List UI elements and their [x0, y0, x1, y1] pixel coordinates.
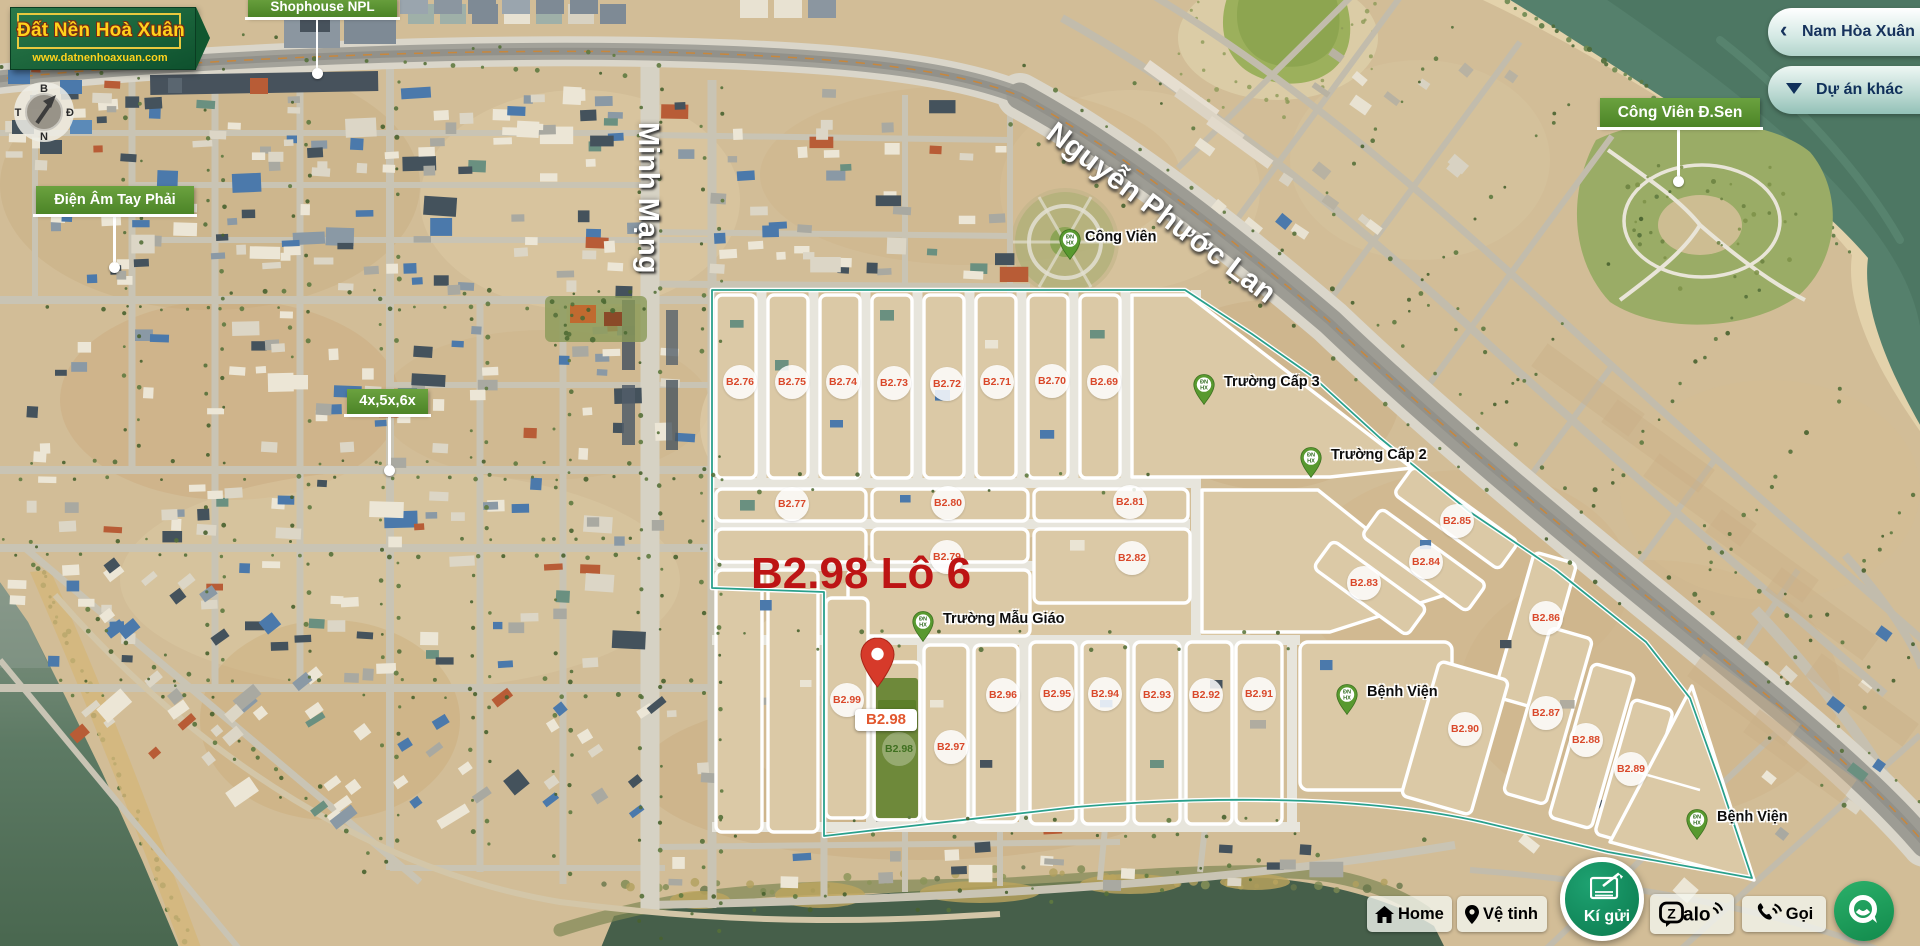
svg-text:HX: HX	[1066, 240, 1074, 246]
svg-text:alo: alo	[1683, 905, 1710, 926]
svg-text:HX: HX	[1343, 695, 1351, 701]
svg-text:HX: HX	[1200, 385, 1208, 391]
svg-text:T: T	[15, 107, 22, 119]
svg-text:B: B	[40, 83, 48, 95]
svg-text:HX: HX	[919, 622, 927, 628]
svg-text:HX: HX	[1693, 820, 1701, 826]
svg-text:N: N	[40, 131, 48, 143]
svg-text:Đ: Đ	[66, 107, 74, 119]
svg-text:Z: Z	[1667, 906, 1676, 922]
svg-text:HX: HX	[1307, 458, 1315, 464]
